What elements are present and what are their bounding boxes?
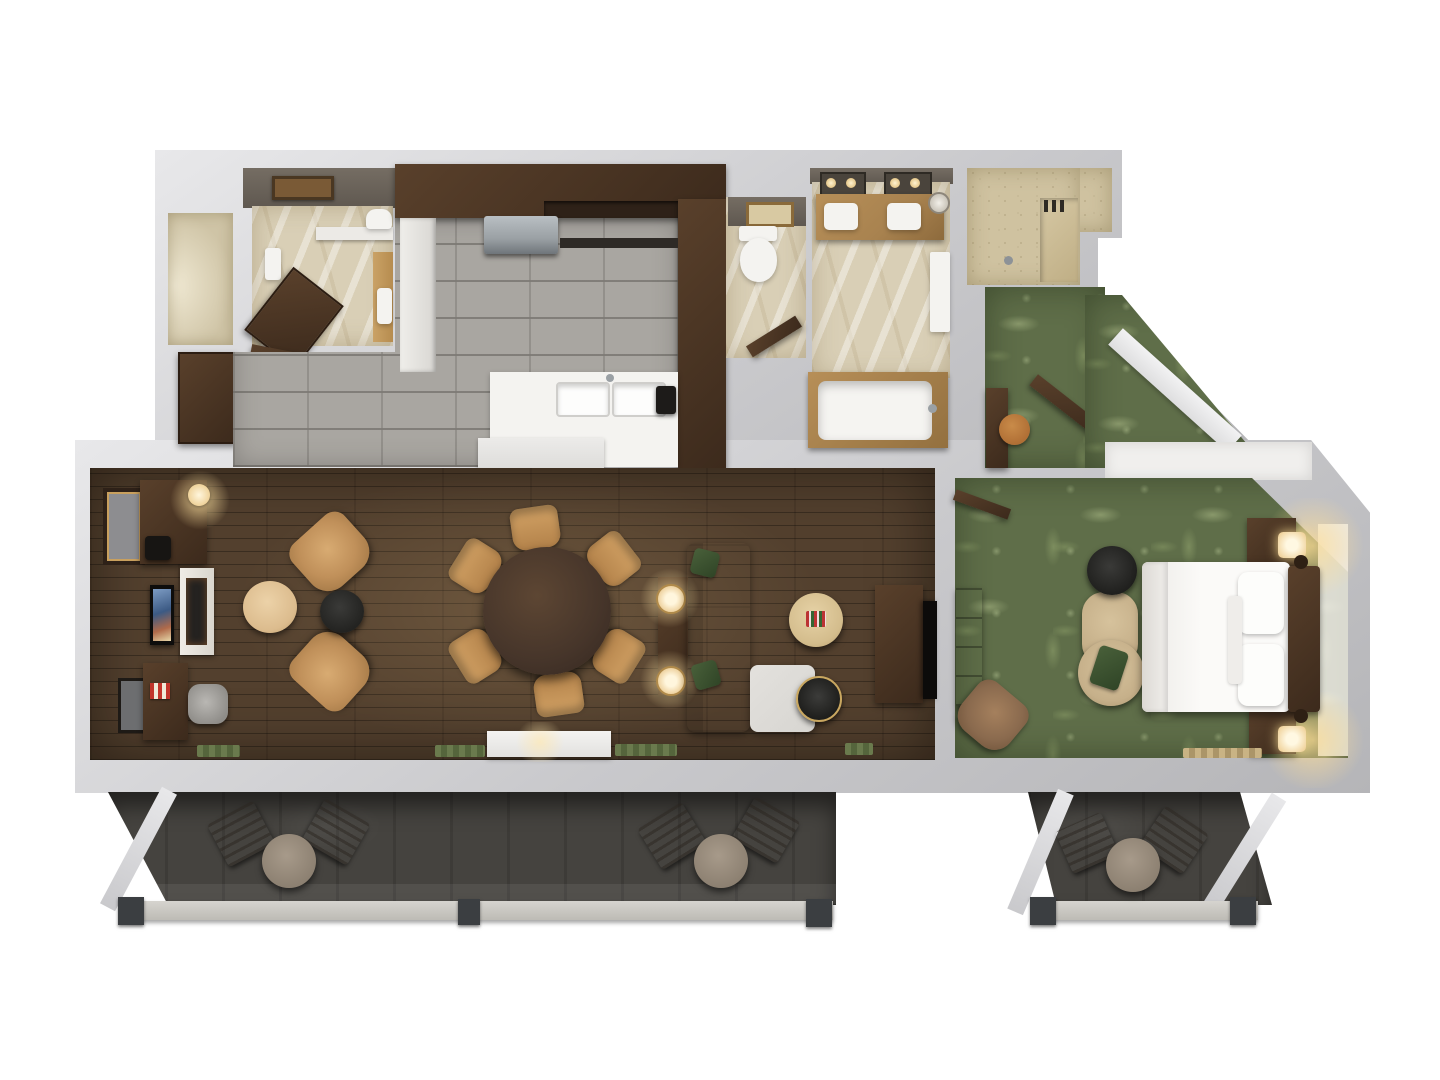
bathtub: [818, 381, 932, 440]
bedroom-threshold-mat: [1183, 748, 1262, 758]
lanai-post-1: [118, 897, 144, 925]
closet-floor: [168, 213, 233, 345]
lounge-coffee-table: [320, 590, 364, 633]
guest-sink: [377, 288, 392, 324]
tub-faucet: [928, 404, 937, 413]
lanai-post-2: [458, 899, 480, 925]
entry-stool: [999, 414, 1030, 445]
bed-pillow-2: [1238, 644, 1284, 706]
lanai-post-5: [1230, 897, 1256, 925]
magnifying-mirror: [928, 192, 950, 214]
threshold-mat-1: [197, 745, 240, 757]
vanity-sink-right: [887, 203, 921, 230]
vanity-sink-left: [824, 203, 858, 230]
bistro-table: [1106, 838, 1160, 892]
headboard-post-bottom: [1294, 709, 1308, 723]
kitchen-fridge-counter: [400, 218, 436, 372]
threshold-mat-3: [615, 744, 677, 756]
bar-lamp: [188, 484, 210, 506]
kitchen-counter-step: [544, 201, 690, 218]
sink-faucet: [606, 374, 614, 382]
bistro-table: [694, 834, 748, 888]
bar-art-frame: [103, 488, 145, 565]
headboard-post-top: [1294, 555, 1308, 569]
floor-plan-render: [0, 0, 1440, 1080]
desk-chair: [188, 684, 228, 724]
firebox: [186, 578, 207, 645]
powder-wall-frame: [746, 202, 794, 227]
black-side-table: [796, 676, 842, 722]
bedroom-lanai-railing: [1040, 901, 1258, 920]
bath-shelf-niche: [930, 252, 950, 332]
guest-towel: [265, 248, 281, 280]
toilet-bowl: [740, 238, 777, 282]
kitchen-tall-cabinet-column: [678, 199, 726, 472]
shower-fixtures: [1044, 200, 1066, 212]
guest-toilet: [366, 209, 392, 229]
sconce-light-2: [846, 178, 856, 188]
main-lanai-railing: [128, 901, 833, 920]
dishwasher: [484, 216, 558, 254]
desk-magazine: [150, 683, 170, 699]
entry-tile-floor: [1105, 442, 1312, 480]
sconce-light-4: [910, 178, 920, 188]
tv-screen: [153, 589, 171, 641]
bistro-table: [262, 834, 316, 888]
ceiling-vent-frame: [272, 176, 334, 200]
bed-wall-light-floor: [1318, 524, 1348, 756]
dining-chair: [532, 670, 585, 718]
dining-table: [483, 547, 611, 675]
coffee-machine: [656, 386, 676, 414]
bed-duvet-fold: [1142, 562, 1168, 712]
threshold-mat-4: [845, 743, 873, 755]
bed-runner: [1228, 596, 1242, 684]
hall-cabinet: [178, 352, 237, 444]
bed-headboard: [1288, 566, 1320, 712]
bar-espresso-machine: [145, 536, 171, 560]
sconce-light-3: [890, 178, 900, 188]
sink-basin-left: [556, 382, 610, 417]
round-pouf: [243, 581, 297, 633]
bed-pillow-1: [1238, 572, 1284, 634]
console-lamp-1: [656, 584, 686, 614]
threshold-mat-2: [435, 745, 485, 757]
nightstand-lamp-2: [1278, 726, 1306, 752]
shower-head: [1004, 256, 1013, 265]
dining-chair: [509, 504, 562, 552]
desk-art-frame: [118, 678, 146, 733]
console-lamp-2: [656, 666, 686, 696]
lanai-post-4: [1030, 897, 1056, 925]
living-tv: [923, 601, 937, 699]
bedroom-side-table: [1087, 546, 1137, 595]
lanai-post-3: [806, 899, 832, 927]
work-desk: [143, 663, 188, 740]
cooktop-strip: [560, 238, 678, 248]
island-counter-top: [478, 438, 604, 470]
sconce-light-1: [826, 178, 836, 188]
white-credenza: [487, 731, 611, 757]
coffee-table-tray: [806, 611, 826, 627]
media-console: [875, 585, 923, 703]
